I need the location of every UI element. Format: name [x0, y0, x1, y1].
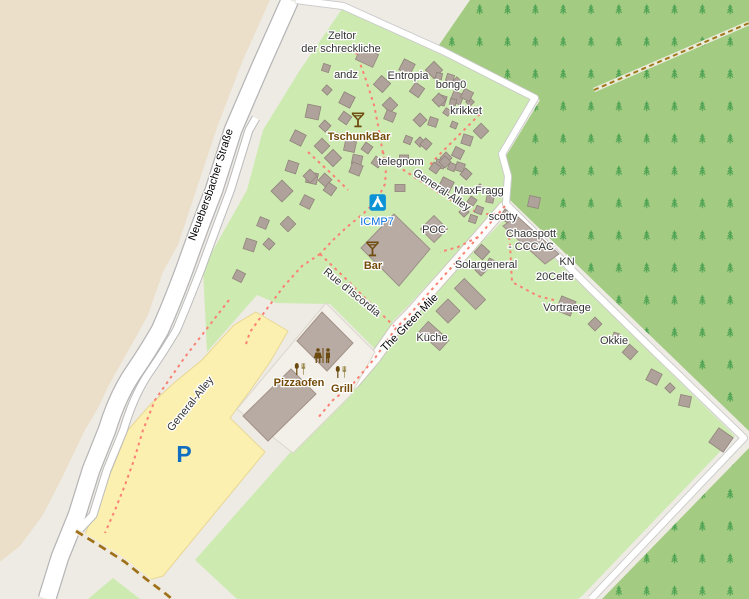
- svg-text:Entropia: Entropia: [388, 70, 430, 82]
- svg-text:bong0: bong0: [436, 79, 467, 91]
- svg-text:20Celte: 20Celte: [536, 271, 574, 283]
- svg-text:der schreckliche: der schreckliche: [301, 43, 380, 55]
- svg-text:Chaospott: Chaospott: [506, 228, 556, 240]
- svg-text:Zeltor: Zeltor: [328, 30, 356, 42]
- svg-text:Pizzaofen: Pizzaofen: [274, 377, 325, 389]
- svg-text:Küche: Küche: [416, 332, 447, 344]
- svg-text:ICMP7: ICMP7: [360, 216, 394, 228]
- svg-text:Bar: Bar: [364, 260, 383, 272]
- svg-text:Okkie: Okkie: [600, 335, 628, 347]
- svg-text:KN: KN: [559, 256, 574, 268]
- svg-text:Grill: Grill: [331, 383, 353, 395]
- svg-text:P: P: [176, 441, 191, 467]
- svg-text:MaxFragg: MaxFragg: [454, 185, 504, 197]
- svg-text:POC: POC: [422, 224, 446, 236]
- svg-text:andz: andz: [334, 69, 358, 81]
- svg-text:krikket: krikket: [450, 105, 482, 117]
- svg-text:scotty: scotty: [489, 211, 518, 223]
- svg-text:Vortraege: Vortraege: [543, 302, 591, 314]
- svg-text:TschunkBar: TschunkBar: [328, 131, 391, 143]
- svg-text:- CCCAC: - CCCAC: [508, 241, 554, 253]
- svg-text:Solargeneral: Solargeneral: [455, 259, 517, 271]
